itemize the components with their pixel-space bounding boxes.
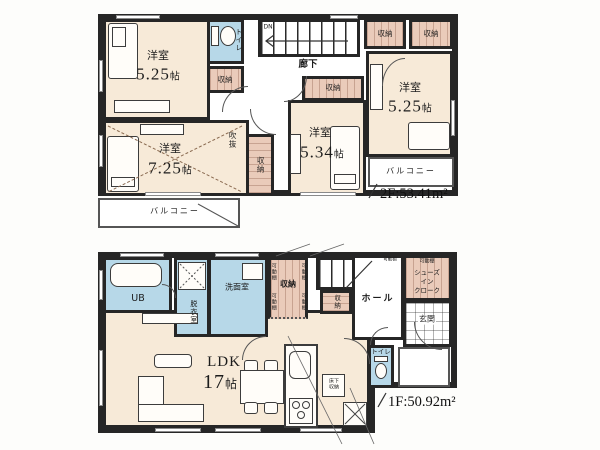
dining-chair (264, 402, 278, 414)
coffee-table (154, 354, 192, 368)
balcony-label: バルコニー (150, 208, 200, 217)
room-name: 洋室 (399, 82, 421, 94)
window (451, 100, 455, 136)
stove (289, 398, 313, 424)
floorplan-1f: UB 脱衣室 洗面室 収納 可動棚 可動棚 可動棚 可動棚 収納 ホール 可動棚… (98, 252, 458, 450)
washroom-label: 洗面室 (225, 284, 249, 293)
stairs-dn-label: DN (263, 25, 272, 32)
pillow (111, 177, 135, 187)
underfloor-label: 床下収納 (327, 380, 341, 391)
closet-label: 収納 (326, 84, 341, 92)
room-size: 5.34帖 (300, 144, 344, 163)
window (116, 15, 160, 19)
toilet-label: トイレ (234, 28, 242, 52)
floorplan-canvas: 洋室 5.25帖 トイレ 収納 DN 廊下 収納 収納 洋室 5.25帖 収納 … (0, 0, 600, 450)
closet-label: 収納 (256, 157, 264, 174)
floorplan-2f: 洋室 5.25帖 トイレ 収納 DN 廊下 収納 収納 洋室 5.25帖 収納 … (98, 14, 458, 246)
void-label: 吹抜 (228, 132, 236, 149)
ldk-size: 17帖 (203, 371, 237, 393)
room-size: 5.25帖 (388, 98, 432, 117)
pillow (334, 174, 356, 184)
sofa (138, 404, 204, 422)
shelf-label: 可動棚 (300, 263, 306, 281)
2f-stairs (258, 19, 360, 57)
bed (408, 122, 450, 150)
shelf-label: 可動棚 (270, 293, 276, 311)
desk (370, 64, 383, 110)
window (155, 428, 201, 432)
1f-porch (398, 347, 450, 387)
shoe-closet-label: シューズ (414, 269, 440, 276)
window (99, 350, 103, 406)
balcony-label: バルコニー (386, 168, 436, 177)
shoe-closet-label: クローク (414, 287, 440, 294)
window (99, 60, 103, 92)
1f-area-label: 1F:50.92m² (388, 394, 456, 411)
window (99, 270, 103, 300)
shelf (140, 124, 184, 135)
shelf-label: 可動棚 (270, 263, 276, 281)
closet-label: 収納 (280, 281, 296, 290)
window (120, 253, 164, 257)
shelf-label: 可動棚 (300, 293, 306, 311)
sink-vanity (242, 263, 263, 280)
window (300, 192, 356, 196)
dining-chair (244, 402, 258, 414)
washer-pan (178, 262, 206, 290)
ub-label: UB (131, 294, 144, 304)
window (99, 135, 103, 167)
window (300, 428, 342, 432)
2f-area-label: 2F:53.41m² (380, 186, 448, 203)
toilet-bowl (375, 363, 387, 379)
shelf-label: 可動棚 (419, 259, 434, 265)
desk (114, 100, 170, 113)
hall-label: ホール (361, 295, 394, 305)
pillow (112, 27, 126, 47)
toilet-tank (211, 26, 219, 46)
toilet-tank (374, 356, 388, 362)
closet-label: 収納 (378, 30, 393, 38)
closet-label: 収納 (218, 76, 233, 84)
window (145, 192, 201, 196)
window (215, 428, 261, 432)
kitchen-sink (289, 351, 311, 379)
room-name: 洋室 (309, 127, 331, 139)
hallway-label: 廊下 (298, 60, 317, 70)
bathtub (110, 263, 162, 287)
shelf-label: 可動棚 (383, 259, 397, 264)
ldk-name: LDK (207, 354, 241, 371)
toilet-label: トイレ (371, 348, 391, 355)
closet-label: 収納 (424, 30, 439, 38)
room-name: 洋室 (159, 143, 181, 155)
refrigerator-space (343, 402, 367, 426)
room-size: 5.25帖 (136, 66, 180, 85)
window (330, 15, 358, 19)
window (215, 253, 259, 257)
room-name: 洋室 (147, 50, 169, 62)
room-size: 7.25帖 (148, 160, 192, 179)
entrance-label: 玄関 (418, 316, 436, 325)
closet-label: 収納 (332, 295, 339, 310)
dressing-label: 脱衣室 (189, 300, 197, 324)
shoe-closet-label: イン (421, 278, 434, 285)
dining-table (240, 370, 284, 404)
